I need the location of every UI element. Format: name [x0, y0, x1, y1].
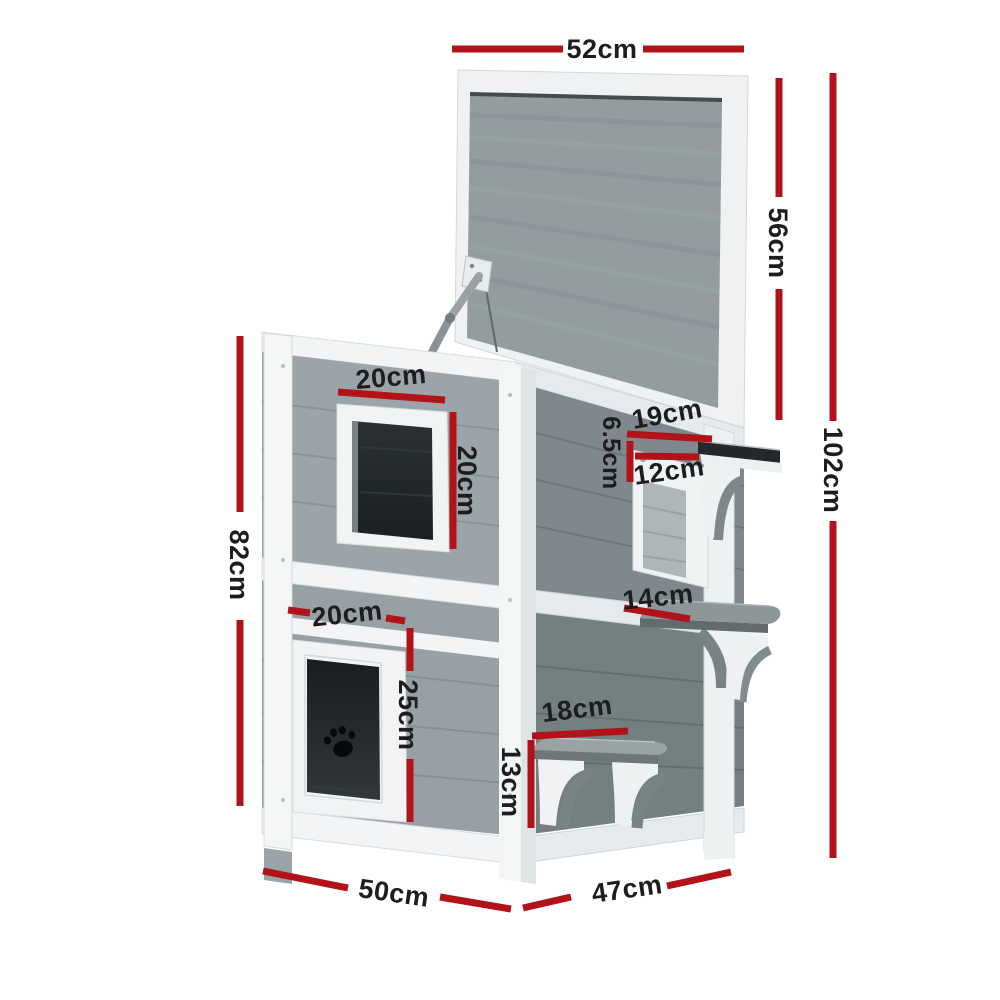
window-glass	[352, 421, 433, 540]
dim-bottom-step-height: 13cm	[496, 740, 531, 828]
dim-base-depth-label: 50cm	[357, 873, 432, 913]
dim-lid-panel-height: 56cm	[763, 78, 793, 420]
balcony-opening	[643, 481, 686, 578]
dim-lid-panel-height-label: 56cm	[763, 207, 793, 278]
dim-bottom-step-height-label: 13cm	[496, 746, 526, 817]
dim-base-depth: 50cm	[263, 871, 511, 913]
dim-base-width-label: 47cm	[590, 869, 665, 909]
dim-door-height-label: 25cm	[393, 679, 423, 750]
dimension-diagram-canvas: 52cm 56cm 102cm 20cm 20cm 19cm	[0, 0, 1000, 1000]
pet-door	[293, 640, 407, 822]
strut-elbow	[445, 313, 455, 323]
dim-total-height-label: 102cm	[818, 427, 848, 514]
back-leg	[704, 830, 734, 860]
window-reveal	[352, 421, 358, 533]
dim-body-height: 82cm	[224, 336, 254, 806]
cat-house-dimension-diagram: 52cm 56cm 102cm 20cm 20cm 19cm	[0, 0, 1000, 1000]
dim-total-height: 102cm	[818, 73, 848, 858]
dim-shelf-drop-label: 6.5cm	[597, 416, 625, 489]
hinge-screw	[470, 264, 474, 268]
dim-shelf-drop: 6.5cm	[597, 416, 630, 489]
strut-arm-lower	[432, 318, 450, 352]
dim-body-height-label: 82cm	[224, 529, 254, 600]
dim-lid-width: 52cm	[452, 34, 744, 64]
dim-base-width: 47cm	[523, 869, 731, 909]
dim-lid-width-label: 52cm	[566, 34, 637, 64]
front-left-post	[264, 333, 292, 884]
dim-window-width-label: 20cm	[354, 359, 427, 395]
dim-window-height-label: 20cm	[452, 445, 482, 516]
window	[337, 404, 449, 552]
